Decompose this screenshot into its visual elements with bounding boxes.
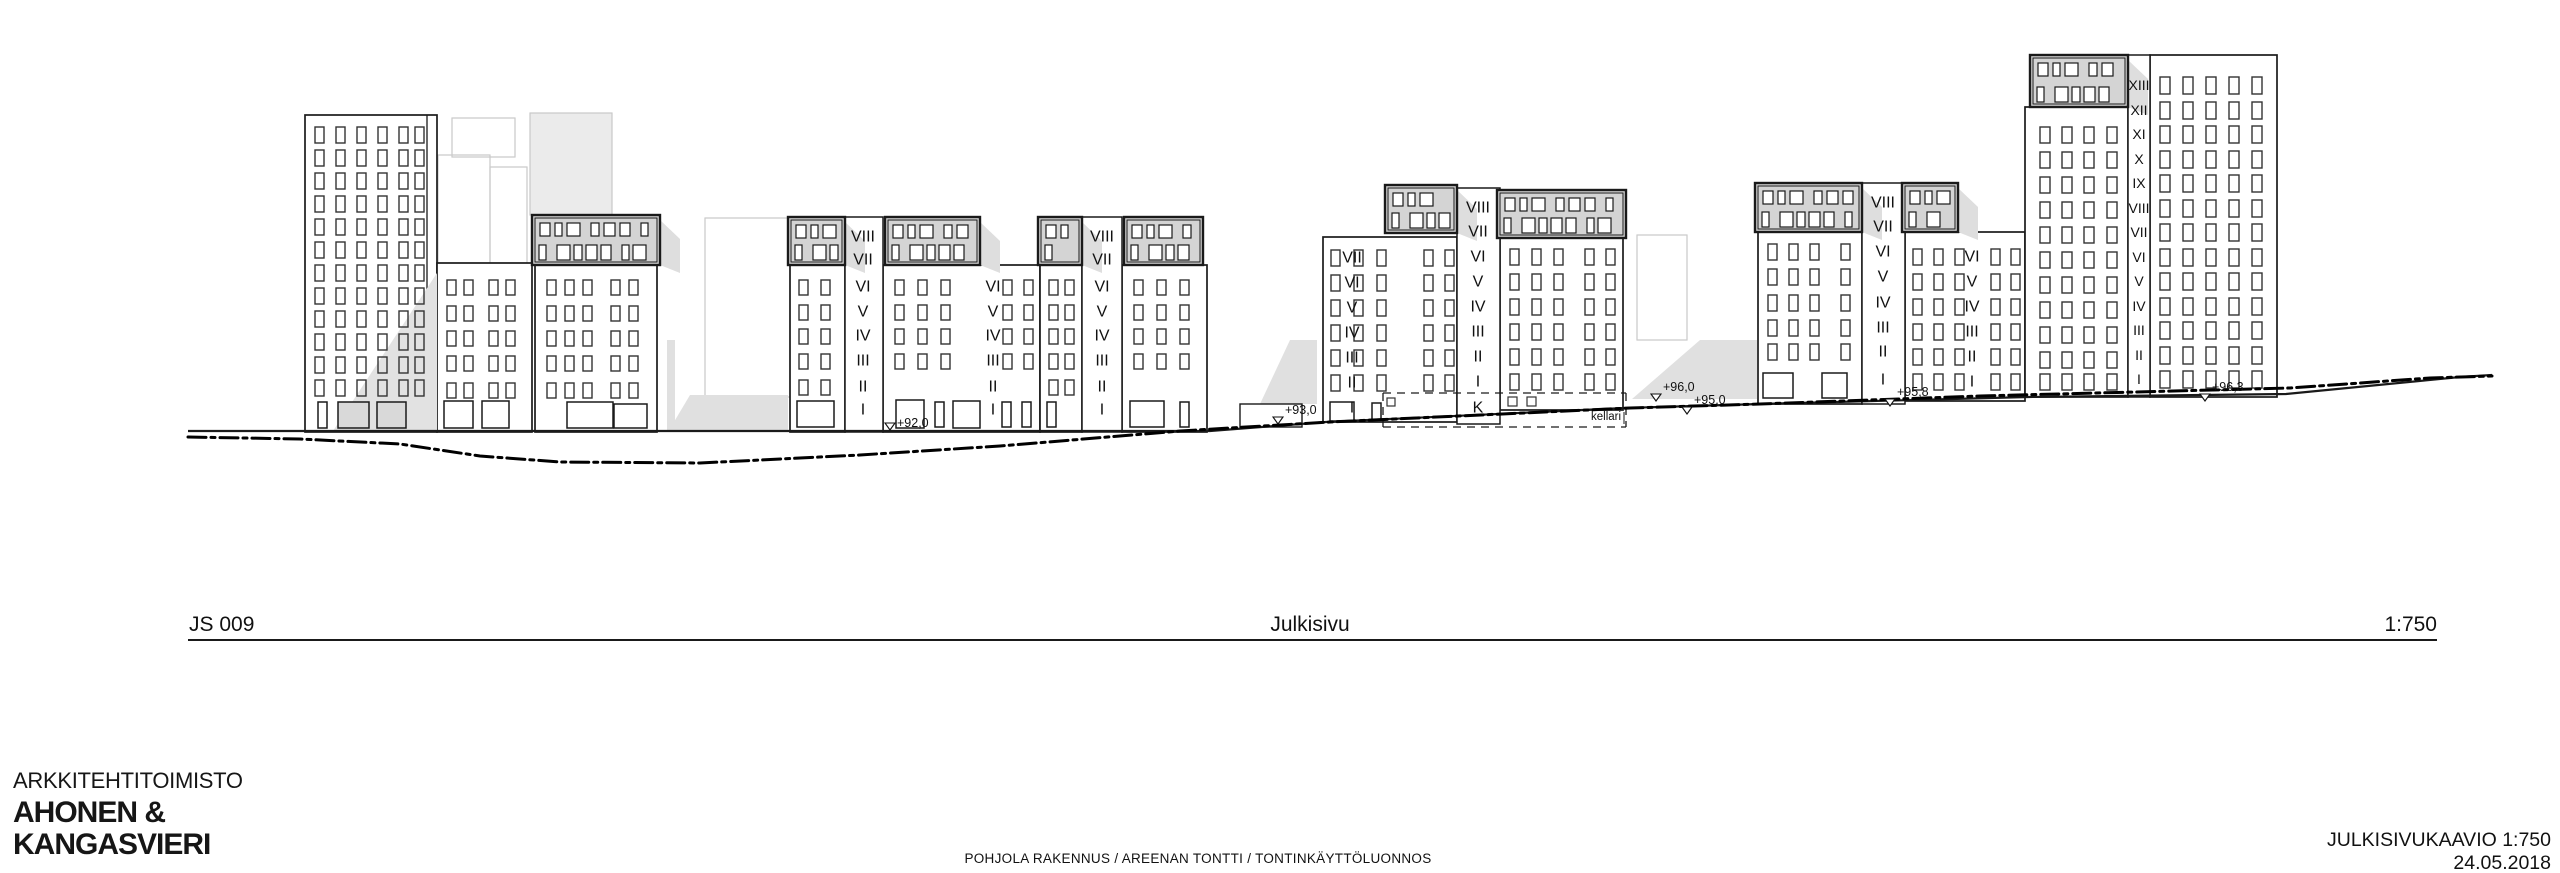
cap-window bbox=[1569, 198, 1580, 211]
level-marker-value: +92,0 bbox=[897, 416, 929, 430]
cap-window bbox=[1520, 198, 1527, 211]
floor-label: V bbox=[1097, 304, 1108, 321]
drawing-scale: 1:750 bbox=[2384, 613, 2437, 637]
cap-window bbox=[1393, 193, 1403, 206]
storefront-window bbox=[444, 401, 473, 428]
cap-window bbox=[1763, 191, 1773, 204]
floor-label: II bbox=[1474, 349, 1483, 366]
cap-window bbox=[954, 245, 964, 260]
cap-window bbox=[2037, 87, 2044, 102]
floor-label: VI bbox=[1964, 249, 1979, 266]
basement-window bbox=[1387, 398, 1395, 406]
floor-label: VIII bbox=[2128, 200, 2149, 216]
cap-window bbox=[1178, 245, 1189, 260]
background-building-outline bbox=[452, 118, 515, 157]
cap-window bbox=[1937, 191, 1950, 204]
cap-window bbox=[1843, 191, 1853, 204]
floor-label: II bbox=[1098, 379, 1107, 396]
floor-label: I bbox=[1881, 372, 1885, 389]
cap-window bbox=[927, 245, 935, 260]
background-building-outline bbox=[705, 218, 790, 397]
level-marker-value: +95,0 bbox=[1694, 393, 1726, 407]
cap-window bbox=[1522, 218, 1535, 233]
floor-label: V bbox=[858, 304, 869, 321]
storefront-window bbox=[1130, 401, 1164, 427]
cap-window bbox=[893, 225, 903, 238]
storefront-window bbox=[482, 401, 509, 428]
storefront-window bbox=[953, 401, 980, 428]
ground-mass bbox=[668, 395, 788, 432]
floor-label: VII bbox=[1342, 250, 1362, 267]
storefront-window bbox=[1822, 373, 1847, 398]
cap-window bbox=[823, 225, 836, 238]
cap-window bbox=[586, 245, 597, 260]
cap-shadow bbox=[1958, 188, 1978, 240]
floor-label: III bbox=[1876, 320, 1889, 337]
cap-window bbox=[795, 245, 802, 260]
floor-label: III bbox=[856, 353, 869, 370]
storefront-window bbox=[935, 402, 944, 427]
floor-label: IV bbox=[1875, 295, 1890, 312]
cap-window bbox=[892, 245, 899, 260]
floor-label: VI bbox=[1875, 244, 1890, 261]
storefront-window bbox=[1763, 373, 1793, 398]
storefront-window bbox=[1180, 402, 1189, 427]
floor-label: V bbox=[1878, 269, 1889, 286]
floor-label: II bbox=[1879, 344, 1888, 361]
cap-window bbox=[1824, 212, 1834, 227]
cap-window bbox=[1910, 191, 1920, 204]
level-marker-value: +93,0 bbox=[1285, 403, 1317, 417]
cap-window bbox=[1539, 218, 1547, 233]
floor-label: II bbox=[989, 379, 998, 396]
floor-label: I bbox=[1100, 402, 1104, 419]
cap-window bbox=[908, 225, 915, 238]
cap-window bbox=[1585, 198, 1595, 211]
floor-label: IV bbox=[855, 328, 870, 345]
cap-window bbox=[1149, 245, 1162, 260]
floor-label: V bbox=[1967, 274, 1978, 291]
storefront-window bbox=[318, 402, 327, 428]
floor-label: VI bbox=[1470, 249, 1485, 266]
cap-window bbox=[2084, 87, 2095, 102]
floor-label: VIII bbox=[1871, 195, 1895, 212]
cap-window bbox=[1566, 218, 1576, 233]
cap-window bbox=[939, 245, 950, 260]
cap-window bbox=[957, 225, 968, 238]
cap-window bbox=[574, 245, 582, 260]
cap-window bbox=[1410, 213, 1423, 228]
floor-label: VI bbox=[855, 279, 870, 296]
cap-window bbox=[1045, 245, 1052, 260]
drawing-number: JS 009 bbox=[189, 613, 254, 637]
cap-window bbox=[1827, 191, 1838, 204]
background-building-outline bbox=[530, 113, 612, 215]
storefront-window bbox=[377, 402, 406, 428]
cap-window bbox=[2099, 87, 2109, 102]
cap-shadow bbox=[980, 222, 1000, 273]
cap-window bbox=[1598, 218, 1611, 233]
cap-window bbox=[1606, 198, 1613, 211]
cap-window bbox=[2102, 63, 2113, 76]
floor-label: II bbox=[1968, 349, 1977, 366]
cap-window bbox=[1061, 225, 1068, 238]
floor-label: II bbox=[1348, 375, 1357, 392]
floor-label: I bbox=[1970, 374, 1974, 391]
cap-window bbox=[2053, 63, 2060, 76]
floor-label: I bbox=[991, 402, 995, 419]
floor-label: VII bbox=[853, 252, 873, 269]
floor-label: V bbox=[1473, 274, 1484, 291]
cap-window bbox=[601, 245, 611, 260]
basement-window bbox=[1527, 397, 1536, 406]
cap-window bbox=[1927, 212, 1940, 227]
cap-window bbox=[1046, 225, 1056, 238]
cap-window bbox=[591, 223, 599, 236]
document-date: 24.05.2018 bbox=[2327, 852, 2551, 873]
firm-name-top: ARKKITEHTITOIMISTO bbox=[13, 770, 243, 792]
cap-window bbox=[1408, 193, 1415, 206]
building-tower-2-right bbox=[2150, 55, 2277, 397]
floor-label: I bbox=[2137, 371, 2141, 387]
cap-window bbox=[540, 223, 550, 236]
cap-window bbox=[633, 245, 646, 260]
cap-window bbox=[1909, 212, 1916, 227]
cap-window bbox=[1809, 212, 1820, 227]
floor-label: VI bbox=[2132, 249, 2145, 265]
cap-window bbox=[1392, 213, 1399, 228]
storefront-window bbox=[797, 401, 834, 427]
cap-window bbox=[1587, 218, 1594, 233]
floor-label: VII bbox=[1092, 252, 1112, 269]
basement-window bbox=[1508, 397, 1517, 406]
elevation-drawing: kellariVIIIVIIVIVIVIIIIIIVIIIVIIVIVIVIII… bbox=[0, 0, 2560, 873]
cap-window bbox=[1778, 191, 1785, 204]
cap-window bbox=[1159, 225, 1172, 238]
background-building-outline bbox=[490, 167, 527, 263]
floor-label: IV bbox=[985, 328, 1000, 345]
storefront-window bbox=[567, 402, 613, 428]
cap-window bbox=[1814, 191, 1822, 204]
cap-window bbox=[1147, 225, 1154, 238]
floor-label: VI bbox=[1094, 279, 1109, 296]
cap-window bbox=[1420, 193, 1433, 206]
floor-label: II bbox=[2135, 347, 2143, 363]
cap-window bbox=[1166, 245, 1174, 260]
cap-window bbox=[796, 225, 806, 238]
floor-label: III bbox=[986, 353, 999, 370]
cap-window bbox=[1780, 212, 1793, 227]
floor-label: II bbox=[859, 379, 868, 396]
cap-window bbox=[641, 223, 648, 236]
floor-label: X bbox=[2134, 151, 2144, 167]
cap-window bbox=[604, 223, 615, 236]
cap-window bbox=[1797, 212, 1805, 227]
cap-window bbox=[830, 245, 838, 260]
floor-label: XII bbox=[2130, 102, 2147, 118]
floor-label: IV bbox=[1094, 328, 1109, 345]
floor-label: I bbox=[861, 402, 865, 419]
cap-window bbox=[1183, 225, 1191, 238]
cap-window bbox=[1790, 191, 1803, 204]
firm-name-line3: KANGASVIERI bbox=[13, 829, 243, 860]
floor-label: III bbox=[1345, 350, 1358, 367]
basement-label: kellari bbox=[1591, 411, 1621, 423]
cap-window bbox=[1925, 191, 1932, 204]
floor-label: III bbox=[1095, 353, 1108, 370]
floor-label: IV bbox=[1964, 299, 1979, 316]
cap-window bbox=[1556, 198, 1564, 211]
cap-window bbox=[2089, 63, 2097, 76]
floor-label: V bbox=[2134, 273, 2144, 289]
document-info: JULKISIVUKAAVIO 1:750 24.05.2018 bbox=[2327, 829, 2551, 873]
firm-name-line2: AHONEN & bbox=[13, 797, 243, 828]
storefront-window bbox=[614, 404, 647, 428]
cap-window bbox=[1504, 218, 1511, 233]
floor-label: III bbox=[2133, 322, 2145, 338]
cap-window bbox=[1427, 213, 1435, 228]
floor-label: VII bbox=[2130, 224, 2147, 240]
floor-label: VI bbox=[1344, 275, 1359, 292]
cap-window bbox=[2038, 63, 2048, 76]
firm-logo: ARKKITEHTITOIMISTO AHONEN & KANGASVIERI bbox=[13, 770, 243, 860]
project-title: POHJOLA RAKENNUS / AREENAN TONTTI / TONT… bbox=[964, 851, 1431, 866]
floor-label: IV bbox=[2132, 298, 2146, 314]
floor-label: IV bbox=[1470, 299, 1485, 316]
floor-label: IV bbox=[1344, 325, 1359, 342]
document-type: JULKISIVUKAAVIO 1:750 bbox=[2327, 829, 2551, 852]
ground-mass bbox=[1260, 340, 1317, 404]
cap-window bbox=[620, 223, 630, 236]
cap-window bbox=[1532, 198, 1545, 211]
storefront-window bbox=[1002, 402, 1011, 427]
floor-label: VIII bbox=[1090, 229, 1114, 246]
cap-window bbox=[622, 245, 629, 260]
cap-shadow bbox=[660, 220, 680, 273]
floor-label: III bbox=[1965, 324, 1978, 341]
cap-window bbox=[920, 225, 933, 238]
floor-label: V bbox=[1347, 300, 1358, 317]
storefront-window bbox=[1047, 402, 1056, 427]
floor-label: I bbox=[1476, 374, 1480, 391]
level-marker-value: +95,8 bbox=[1897, 385, 1929, 399]
cap-window bbox=[1505, 198, 1515, 211]
title-rule bbox=[188, 639, 2437, 641]
cap-window bbox=[1131, 245, 1138, 260]
storefront-window bbox=[1372, 403, 1381, 420]
cap-window bbox=[1439, 213, 1450, 228]
level-marker-icon bbox=[1682, 407, 1692, 414]
floor-label: V bbox=[988, 304, 999, 321]
cap-window bbox=[1762, 212, 1769, 227]
drawing-title: Julkisivu bbox=[1270, 613, 1349, 637]
cap-window bbox=[813, 245, 826, 260]
ground-mass bbox=[667, 340, 675, 432]
level-marker-value: +96,0 bbox=[1663, 380, 1695, 394]
storefront-window bbox=[1022, 402, 1031, 427]
floor-label: III bbox=[1471, 324, 1484, 341]
background-building-outline bbox=[438, 155, 490, 263]
cap-window bbox=[811, 225, 818, 238]
floor-label: I bbox=[1350, 400, 1354, 417]
cap-window bbox=[2055, 87, 2068, 102]
cap-window bbox=[910, 245, 923, 260]
cap-window bbox=[557, 245, 570, 260]
cap-window bbox=[555, 223, 562, 236]
floor-label: IX bbox=[2132, 175, 2146, 191]
floor-label: VIII bbox=[851, 229, 875, 246]
cap-window bbox=[1551, 218, 1562, 233]
drawing-sheet: kellariVIIIVIIVIVIVIIIIIIVIIIVIIVIVIVIII… bbox=[0, 0, 2560, 873]
level-marker-value: +96,3 bbox=[2212, 380, 2244, 394]
floor-label: XI bbox=[2132, 126, 2145, 142]
floor-label: VI bbox=[985, 279, 1000, 296]
cap-window bbox=[2065, 63, 2078, 76]
floor-label: VIII bbox=[1466, 200, 1490, 217]
cap-window bbox=[1845, 212, 1852, 227]
storefront-window bbox=[338, 402, 369, 428]
background-building-outline bbox=[1637, 235, 1687, 340]
cap-window bbox=[567, 223, 580, 236]
floor-label: VII bbox=[1873, 219, 1893, 236]
floor-label: VII bbox=[1468, 224, 1488, 241]
floor-label: XIII bbox=[2128, 77, 2149, 93]
cap-window bbox=[1132, 225, 1142, 238]
cap-window bbox=[539, 245, 546, 260]
cap-window bbox=[944, 225, 952, 238]
cap-window bbox=[2072, 87, 2080, 102]
